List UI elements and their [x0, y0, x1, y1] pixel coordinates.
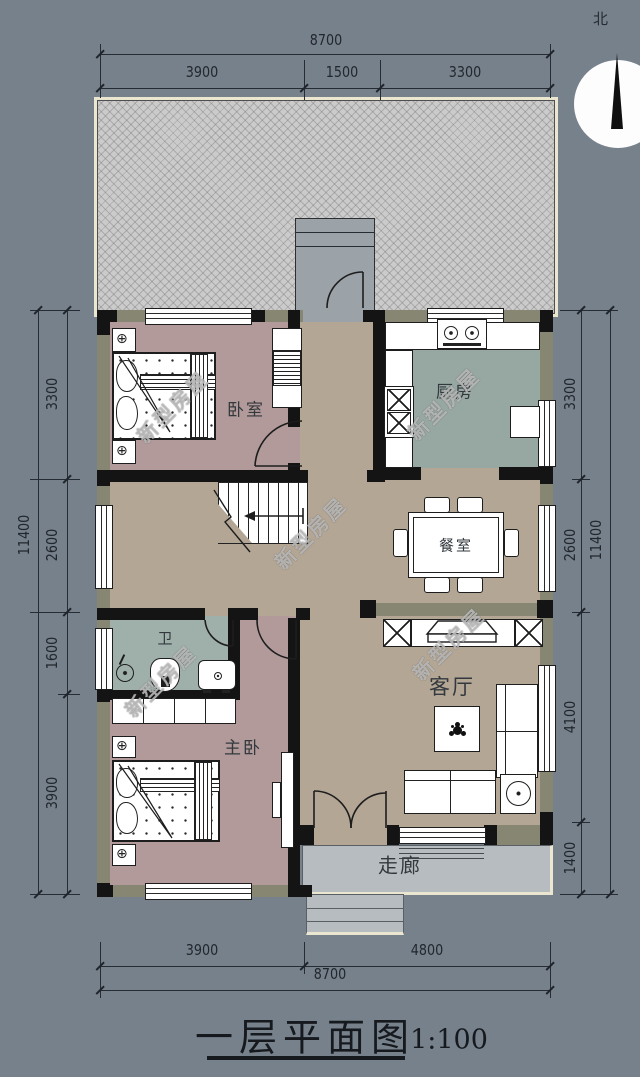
- dimension-line: [30, 612, 80, 613]
- dim-top-seg: 1500: [326, 63, 358, 81]
- room-label-bedroom: 卧室: [227, 396, 265, 421]
- pillow: [116, 768, 138, 798]
- dining-chair: [424, 497, 450, 513]
- window: [538, 400, 556, 467]
- dim-left-total: 11400: [15, 515, 33, 556]
- burner-icon: [444, 326, 458, 340]
- floor-door-gap: [314, 825, 387, 845]
- wall: [97, 470, 308, 482]
- wall: [250, 310, 265, 322]
- wall-pier: [502, 310, 540, 322]
- wardrobe-shelves: [273, 350, 301, 386]
- window: [538, 665, 556, 772]
- toilet-foot: [222, 690, 230, 693]
- plan-title: 一层平面图: [195, 1007, 415, 1062]
- dimension-line: [304, 60, 305, 100]
- wall: [499, 467, 553, 480]
- dim-left-seg: 3900: [43, 777, 61, 809]
- window: [95, 628, 113, 690]
- window: [95, 505, 113, 589]
- room-label-corridor: 走廊: [378, 850, 422, 879]
- nightstand: ⊕: [112, 440, 136, 464]
- wall: [97, 310, 110, 335]
- wall-pier: [97, 702, 110, 883]
- wall-pier: [497, 825, 540, 845]
- dining-chair: [393, 529, 408, 557]
- dim-top-seg: 3900: [186, 63, 218, 81]
- dim-bottom-total: 8700: [314, 965, 346, 983]
- bed-blanket-band: [194, 762, 212, 840]
- wall-pier: [383, 310, 427, 322]
- fridge: [510, 406, 540, 438]
- north-needle-icon: [611, 53, 623, 129]
- sofa: [404, 770, 496, 814]
- wall: [387, 825, 399, 845]
- dim-bottom-seg: 3900: [186, 941, 218, 959]
- tv-cabinet: [281, 752, 294, 848]
- dining-chair: [424, 577, 450, 593]
- north-compass-circle: [574, 60, 640, 148]
- dim-right-seg: 3300: [561, 378, 579, 410]
- north-label: 北: [593, 8, 608, 29]
- nightstand: ⊕: [112, 736, 136, 758]
- burner-icon: [465, 326, 479, 340]
- wall-pier: [113, 885, 145, 897]
- wall-pier: [250, 885, 290, 897]
- stove-panel: [443, 343, 481, 346]
- dimension-line: [304, 942, 305, 974]
- flower-symbol-icon: ⊕: [116, 738, 128, 754]
- toilet-flush-icon: [214, 672, 222, 680]
- wall-pier: [97, 587, 110, 608]
- dimension-line: [38, 310, 39, 894]
- wall: [537, 600, 553, 618]
- wall-pier: [540, 332, 553, 400]
- back-porch-line: [296, 232, 374, 233]
- wall: [360, 600, 376, 618]
- wall-pier: [97, 486, 110, 505]
- dim-top-total: 8700: [310, 31, 342, 49]
- dimension-line: [581, 310, 582, 894]
- window: [145, 883, 252, 900]
- dimension-line: [58, 694, 80, 695]
- dimension-line: [100, 966, 550, 967]
- wall-pier: [97, 620, 110, 628]
- flower-symbol-icon: ⊕: [116, 331, 128, 347]
- flower-symbol-icon: ⊕: [116, 846, 128, 862]
- title-underline: [207, 1056, 405, 1060]
- wall: [288, 463, 300, 482]
- plan-scale: 1:100: [410, 1025, 488, 1056]
- dim-bottom-seg: 4800: [411, 941, 443, 959]
- step-line: [307, 921, 403, 922]
- wall-pier: [540, 484, 553, 505]
- room-label-master: 主卧: [224, 734, 262, 759]
- dim-left-seg: 2600: [43, 529, 61, 561]
- dimension-line: [67, 310, 68, 894]
- wall-pier: [117, 310, 145, 322]
- dim-top-seg: 3300: [449, 63, 481, 81]
- dining-chair: [457, 497, 483, 513]
- plant-icon: [453, 726, 462, 735]
- entry-steps: [306, 894, 404, 935]
- wall-pier: [97, 335, 110, 475]
- floor-drain-icon: [116, 664, 134, 682]
- dining-chair: [457, 577, 483, 593]
- window: [145, 308, 252, 325]
- sofa: [496, 684, 538, 778]
- floor-plan-canvas: 北: [0, 0, 640, 1077]
- room-label-bath: 卫: [157, 628, 174, 649]
- dimension-line: [30, 479, 80, 480]
- pillow: [116, 360, 138, 392]
- sink-basin: [387, 389, 411, 411]
- dining-chair: [504, 529, 519, 557]
- dim-right-seg: 4100: [561, 701, 579, 733]
- lamp-icon: [506, 781, 531, 806]
- dim-right-total: 11400: [587, 520, 605, 561]
- pillow: [116, 802, 138, 834]
- window: [538, 505, 556, 592]
- wall-pier: [540, 770, 553, 812]
- nightstand: ⊕: [112, 328, 136, 352]
- wall: [97, 885, 113, 897]
- dimension-line: [380, 60, 381, 100]
- dimension-line: [100, 54, 550, 55]
- toilet-foot: [203, 690, 211, 693]
- step-line: [307, 908, 403, 909]
- room-label-dining: 餐室: [439, 535, 473, 556]
- wall: [540, 825, 553, 845]
- window: [399, 827, 486, 844]
- back-door-threshold: [303, 310, 363, 322]
- speaker: [383, 619, 411, 647]
- nightstand: ⊕: [112, 844, 136, 866]
- dim-left-seg: 3300: [43, 378, 61, 410]
- dim-right-seg: 1400: [561, 842, 579, 874]
- wall: [540, 310, 553, 332]
- dim-left-seg: 1600: [43, 637, 61, 669]
- speaker: [515, 619, 543, 647]
- dimension-line: [100, 990, 550, 991]
- wall: [97, 608, 205, 620]
- dim-right-seg: 2600: [561, 529, 579, 561]
- tv: [272, 782, 281, 818]
- dimension-line: [610, 310, 611, 894]
- flower-symbol-icon: ⊕: [116, 443, 128, 459]
- back-porch-line: [296, 246, 374, 247]
- dimension-line: [100, 88, 550, 89]
